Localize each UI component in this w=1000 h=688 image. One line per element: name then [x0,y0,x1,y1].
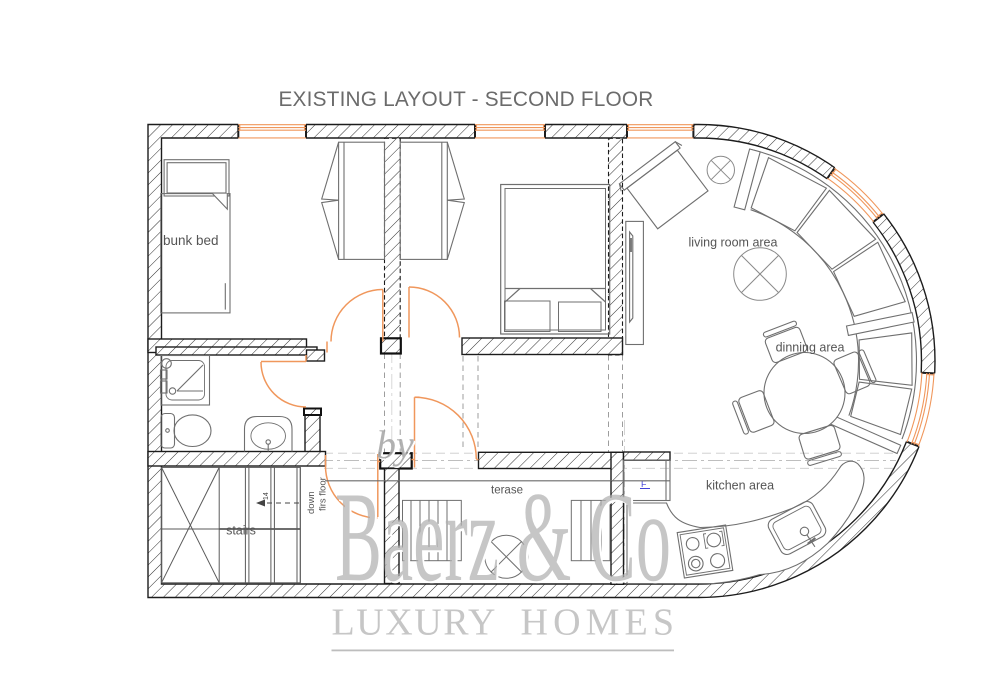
svg-text:kitchen area: kitchen area [706,479,774,493]
svg-text:living room area: living room area [689,236,778,250]
svg-text:Baerz & Co: Baerz & Co [335,465,671,608]
svg-text:by: by [376,422,414,467]
svg-text:dinning area: dinning area [776,341,845,355]
svg-text:stairs: stairs [226,524,256,538]
svg-text:bunk bed: bunk bed [163,233,219,248]
svg-text:LUXURY: LUXURY [332,602,496,644]
svg-text:EXISTING LAYOUT - SECOND FLOOR: EXISTING LAYOUT - SECOND FLOOR [278,88,653,111]
svg-text:14: 14 [263,492,270,500]
